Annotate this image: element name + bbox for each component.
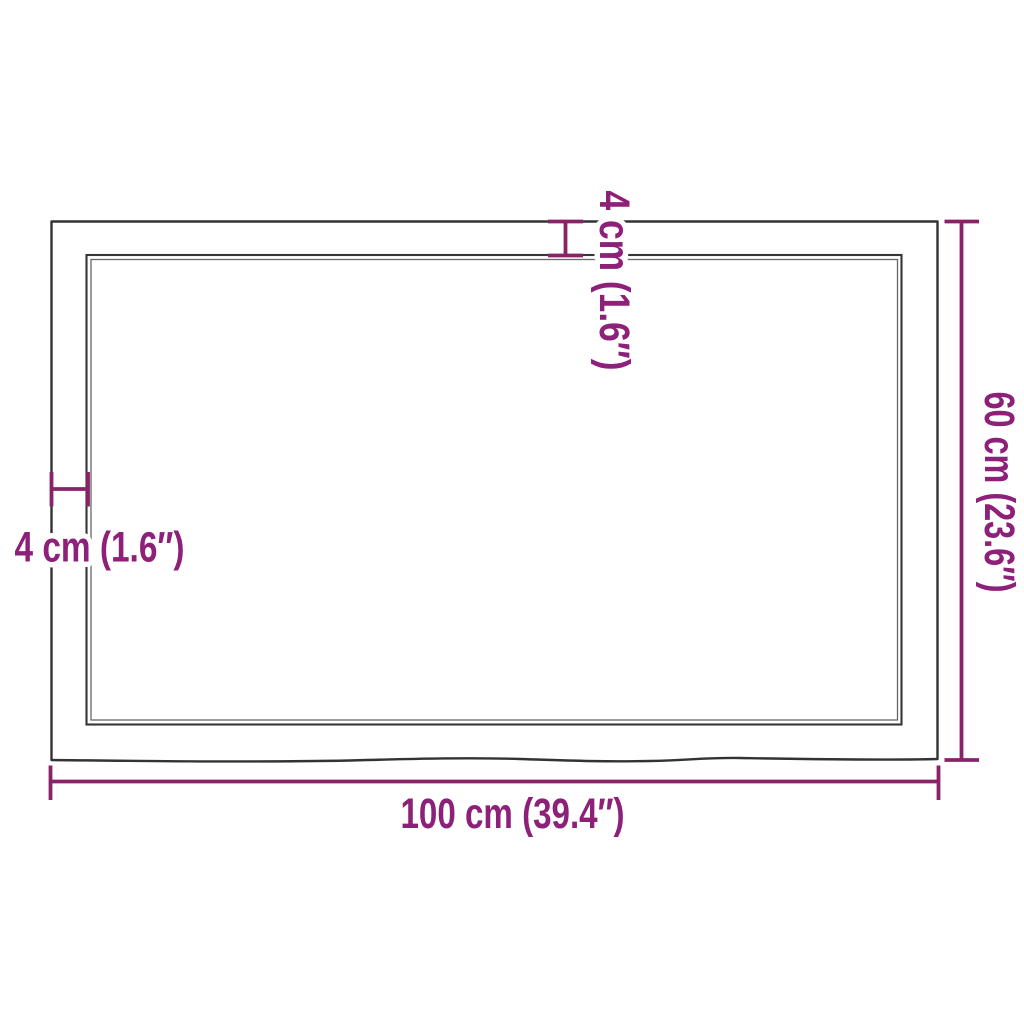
svg-text:100 cm (39.4″): 100 cm (39.4″): [401, 790, 625, 838]
svg-text:4 cm (1.6″): 4 cm (1.6″): [15, 524, 185, 572]
svg-text:4 cm (1.6″): 4 cm (1.6″): [590, 191, 638, 371]
svg-text:60 cm (23.6″): 60 cm (23.6″): [975, 392, 1023, 593]
